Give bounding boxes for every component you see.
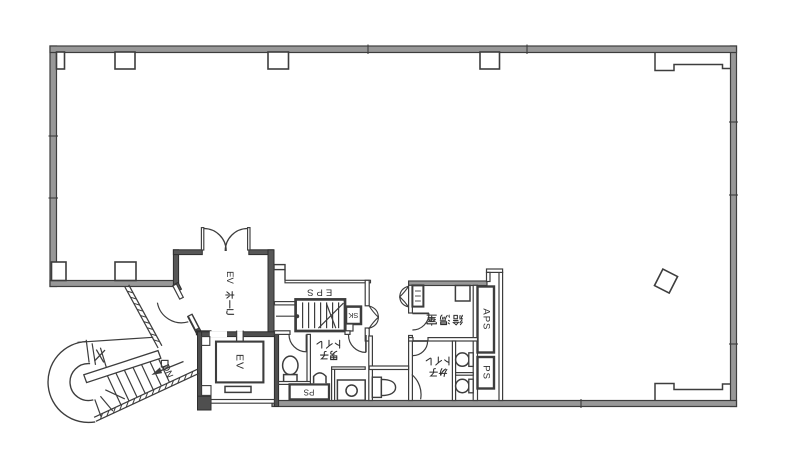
svg-text:APS: APS xyxy=(480,308,491,330)
svg-text:PS: PS xyxy=(480,365,491,380)
svg-text:PS: PS xyxy=(304,388,315,397)
svg-text:SK: SK xyxy=(348,311,358,320)
svg-text:EPS: EPS xyxy=(304,287,332,298)
svg-text:EV: EV xyxy=(234,354,246,370)
svg-text:EV: EV xyxy=(224,271,235,284)
